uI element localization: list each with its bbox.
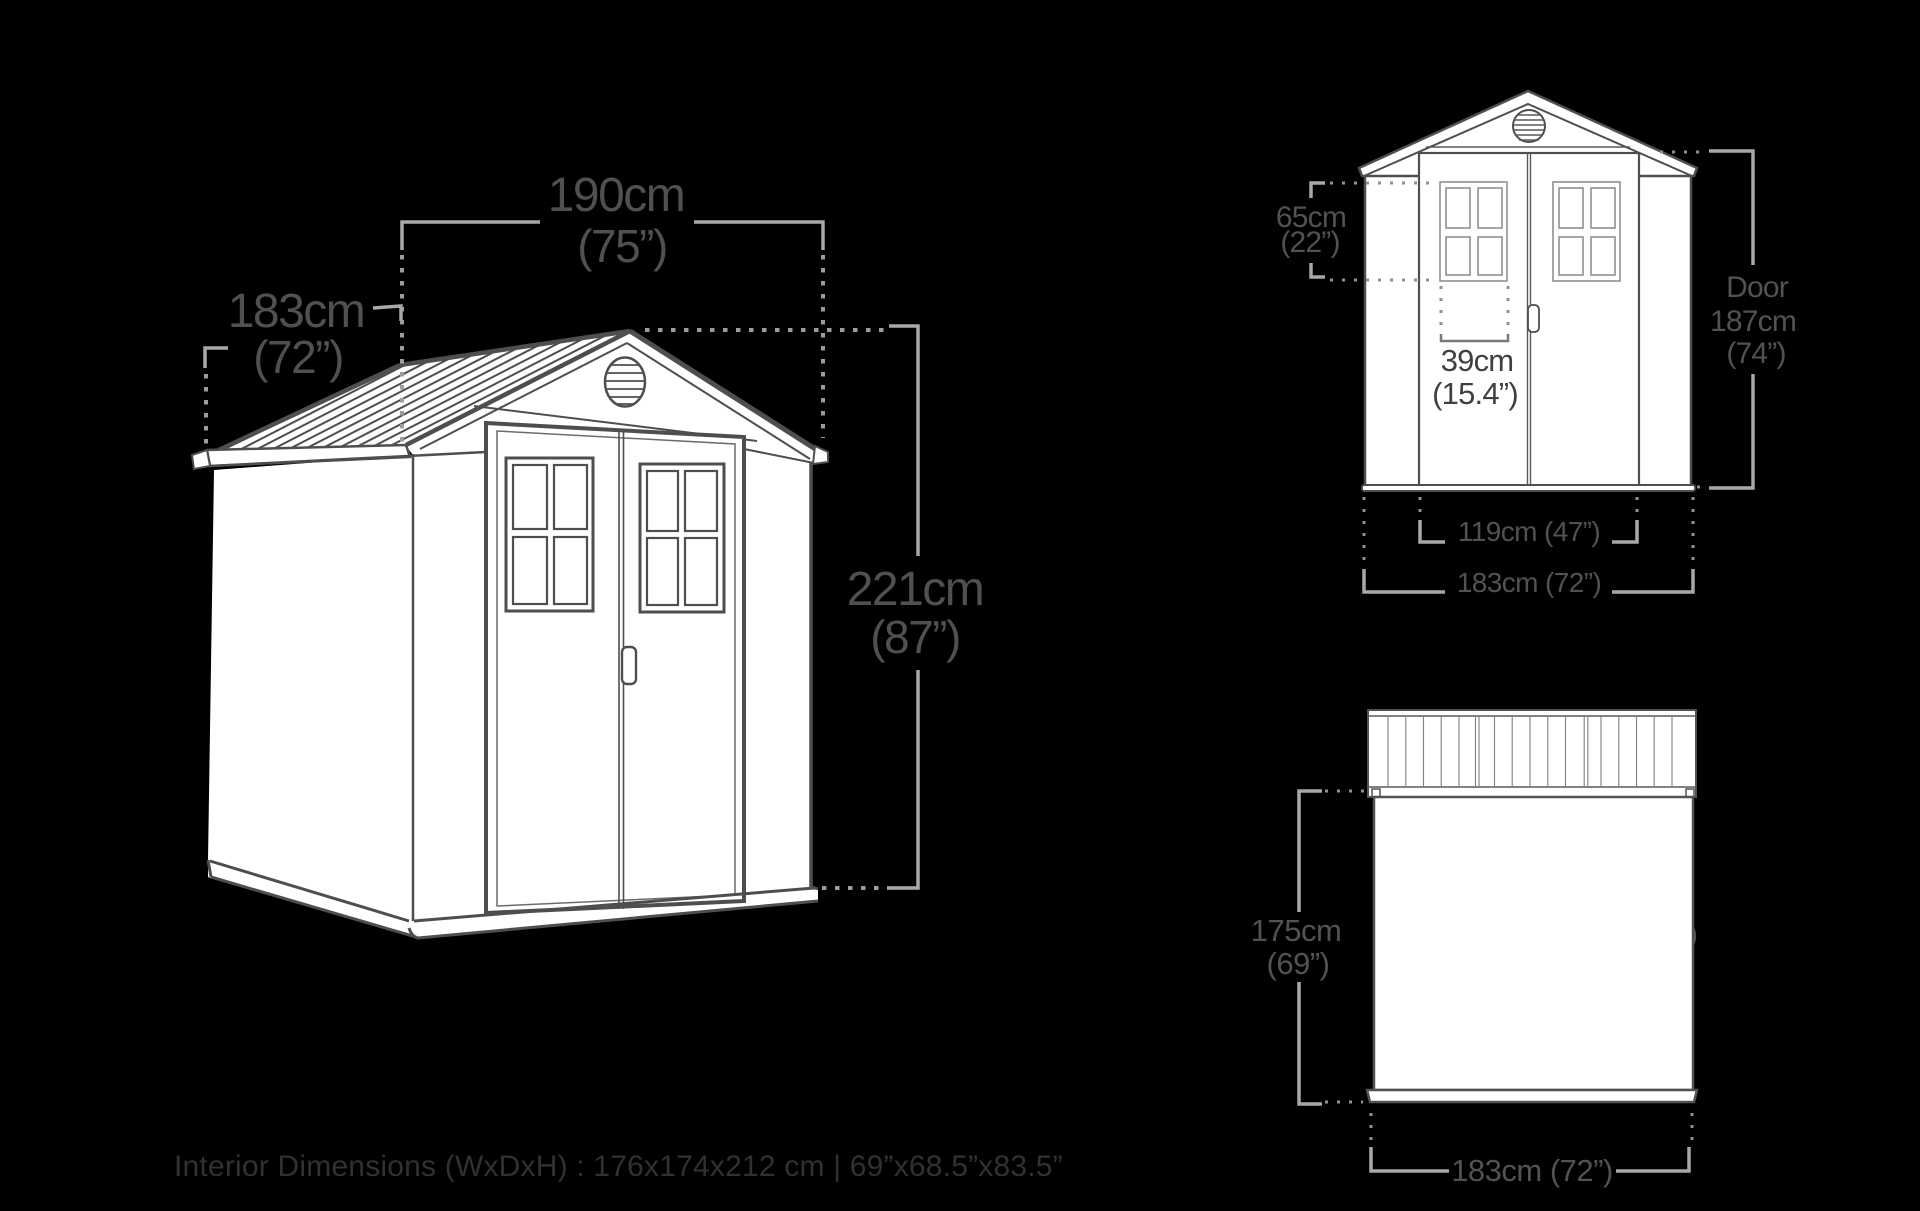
svg-text:190cm: 190cm	[548, 169, 685, 222]
svg-text:39cm: 39cm	[1441, 343, 1514, 378]
svg-text:183cm (72”): 183cm (72”)	[1451, 1153, 1613, 1188]
svg-text:175cm: 175cm	[1251, 913, 1342, 948]
svg-text:221cm: 221cm	[847, 563, 984, 616]
svg-text:Door: Door	[1726, 271, 1789, 304]
svg-text:119cm (47”): 119cm (47”)	[1458, 516, 1600, 547]
svg-text:(75”): (75”)	[577, 220, 667, 272]
svg-text:(87”): (87”)	[870, 611, 960, 663]
svg-text:(15.4”): (15.4”)	[1432, 376, 1518, 411]
svg-text:183cm (72”): 183cm (72”)	[1457, 567, 1601, 598]
svg-text:Interior Dimensions (WxDxH) :: Interior Dimensions (WxDxH) : 176x174x21…	[174, 1150, 1063, 1183]
svg-text:187cm: 187cm	[1710, 305, 1796, 338]
svg-text:(74”): (74”)	[1726, 337, 1785, 370]
svg-text:(22”): (22”)	[1280, 226, 1339, 259]
svg-text:(72”): (72”)	[253, 331, 343, 383]
svg-text:(69”): (69”)	[1267, 946, 1330, 981]
